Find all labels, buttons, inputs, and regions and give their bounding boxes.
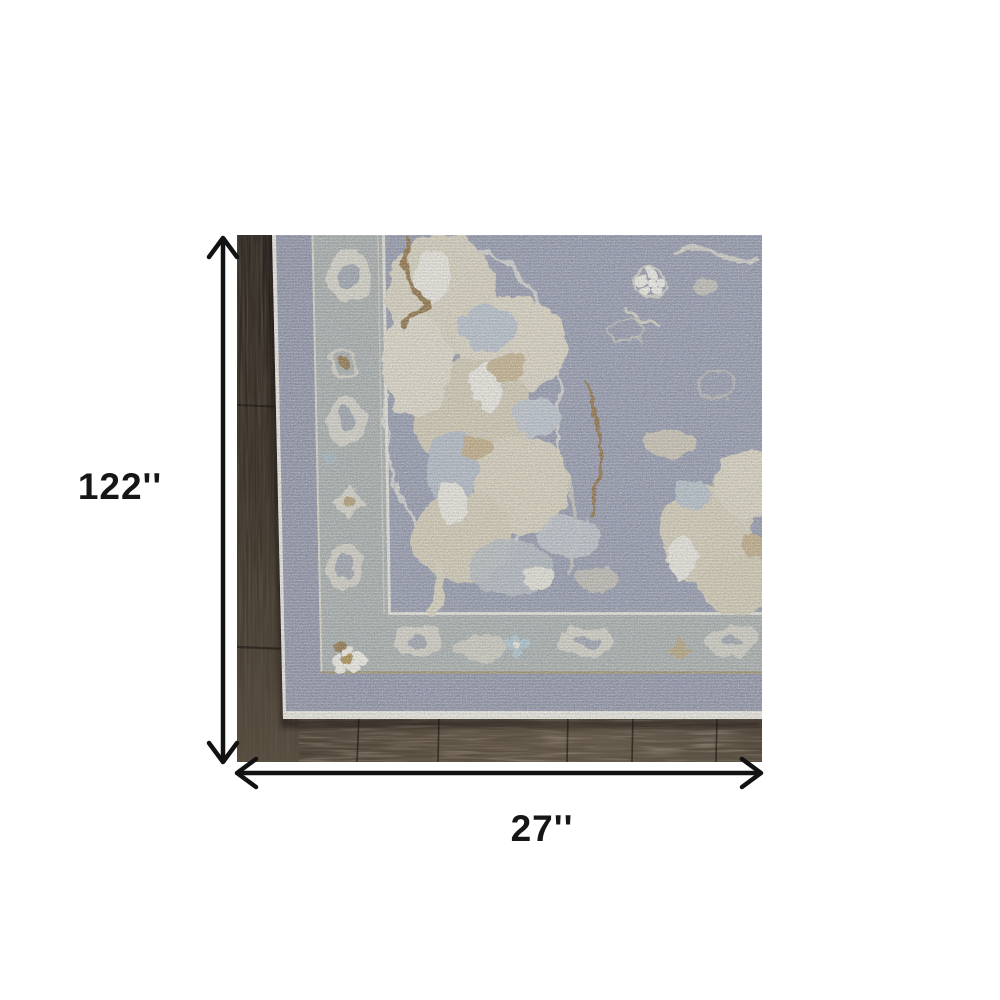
rug-photo-graphic [237,235,762,762]
width-dimension-label: 27'' [474,807,610,851]
height-dimension-label: 122'' [52,465,188,509]
product-dimension-figure: 122'' 27'' [0,0,1000,1000]
width-dimension-arrow [237,759,761,787]
rug-texture [237,235,762,762]
height-dimension-arrow [209,238,237,762]
rug [237,235,762,762]
rug-photo [237,235,762,762]
